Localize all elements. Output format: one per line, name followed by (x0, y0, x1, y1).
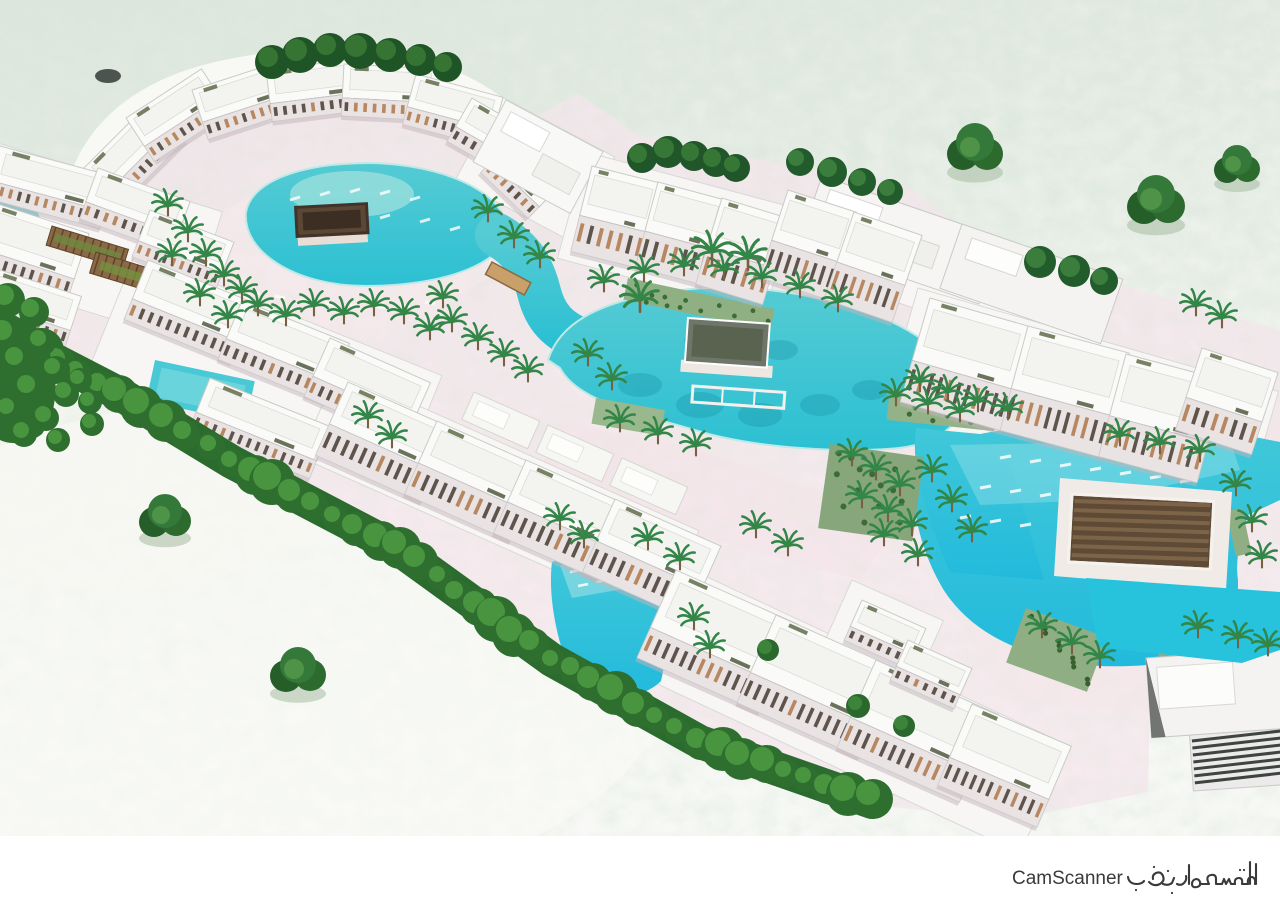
svg-text:CamScanner: CamScanner (1012, 868, 1124, 889)
